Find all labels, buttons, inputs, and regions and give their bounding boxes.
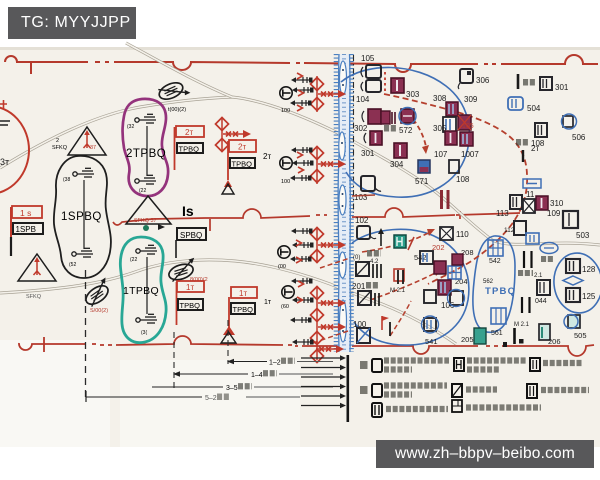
svg-text:506: 506	[572, 133, 586, 142]
svg-text:044: 044	[535, 298, 547, 305]
svg-text:(38: (38	[63, 177, 70, 183]
svg-text:1т: 1т	[264, 299, 272, 306]
svg-text:113: 113	[496, 209, 509, 218]
svg-text:109: 109	[547, 209, 561, 218]
svg-text:1 s: 1 s	[20, 208, 31, 218]
svg-text:301: 301	[555, 83, 569, 92]
svg-text:Is: Is	[182, 203, 194, 219]
svg-text:2т: 2т	[238, 143, 246, 152]
svg-text:5–2: 5–2	[205, 395, 217, 402]
svg-text:(0): (0)	[353, 255, 360, 261]
svg-text:310: 310	[550, 199, 564, 208]
svg-text:2: 2	[56, 138, 59, 144]
svg-text:SFKQ 37: SFKQ 37	[134, 218, 157, 224]
svg-text:(60: (60	[281, 304, 289, 310]
svg-text:(22: (22	[139, 188, 146, 194]
svg-text:303: 303	[406, 90, 420, 99]
svg-text:1007: 1007	[461, 150, 479, 159]
svg-text:2TPBQ: 2TPBQ	[126, 148, 166, 160]
svg-text:1SPBQ: 1SPBQ	[61, 211, 102, 223]
svg-text:100: 100	[281, 108, 290, 114]
svg-text:102: 102	[355, 216, 369, 225]
svg-text:105: 105	[462, 123, 474, 130]
svg-text:1–4: 1–4	[251, 372, 263, 379]
svg-text:103: 103	[354, 193, 368, 202]
svg-text:S/00(2): S/00(2)	[90, 308, 108, 314]
svg-text:(32: (32	[127, 124, 134, 130]
svg-text:306: 306	[476, 76, 490, 85]
svg-text:TPBQ: TPBQ	[233, 305, 254, 314]
svg-text:309: 309	[464, 95, 478, 104]
svg-text:1т: 1т	[239, 289, 247, 298]
svg-text:503: 503	[576, 231, 590, 240]
svg-text:SFKQ: SFKQ	[26, 294, 42, 300]
svg-text:108: 108	[456, 175, 470, 184]
svg-text:302: 302	[354, 124, 368, 133]
svg-text:505: 505	[574, 331, 587, 340]
svg-text:TPBQ: TPBQ	[485, 286, 516, 297]
svg-text:1т: 1т	[186, 283, 194, 292]
svg-text:308: 308	[433, 94, 447, 103]
svg-text:2т: 2т	[531, 144, 539, 153]
svg-text:128: 128	[582, 265, 596, 274]
svg-text:11: 11	[526, 190, 535, 199]
svg-text:37: 37	[90, 145, 96, 151]
svg-text:(3(: (3(	[141, 330, 147, 336]
svg-text:572: 572	[399, 126, 413, 135]
svg-text:1SPB: 1SPB	[16, 225, 36, 234]
svg-text:2т: 2т	[185, 128, 193, 137]
svg-text:105: 105	[361, 54, 375, 63]
svg-text:542: 542	[489, 258, 501, 265]
svg-text:1TPBQ: 1TPBQ	[123, 285, 159, 297]
svg-text:304: 304	[390, 160, 404, 169]
svg-text:2.1: 2.1	[534, 273, 543, 279]
svg-text:205: 205	[461, 335, 474, 344]
svg-text:100: 100	[281, 179, 290, 185]
svg-text:305: 305	[433, 124, 447, 133]
svg-text:104: 104	[356, 95, 370, 104]
svg-text:125: 125	[582, 292, 596, 301]
svg-text:541: 541	[425, 337, 438, 346]
svg-text:301: 301	[361, 149, 375, 158]
svg-text:571: 571	[415, 177, 429, 186]
svg-text:TPBQ: TPBQ	[232, 160, 253, 169]
svg-text:(00: (00	[278, 264, 286, 270]
svg-text:3т: 3т	[0, 157, 9, 167]
svg-text:TPBQ: TPBQ	[179, 145, 200, 154]
svg-text:(52: (52	[69, 262, 76, 268]
svg-text:2т: 2т	[263, 152, 271, 161]
svg-text:107: 107	[434, 150, 448, 159]
svg-text:t(00)(2): t(00)(2)	[168, 107, 186, 113]
svg-text:562: 562	[483, 279, 494, 285]
svg-text:TPBQ: TPBQ	[180, 301, 201, 310]
svg-text:110: 110	[456, 230, 469, 239]
svg-text:SPBQ: SPBQ	[180, 231, 202, 240]
svg-text:M 2.1: M 2.1	[390, 288, 406, 294]
svg-text:1–2: 1–2	[269, 360, 281, 367]
svg-text:SFKQ: SFKQ	[52, 145, 68, 151]
svg-text:3–5: 3–5	[226, 385, 238, 392]
svg-text:201: 201	[352, 282, 366, 291]
svg-text:(22: (22	[130, 257, 137, 263]
svg-text:206: 206	[548, 337, 561, 346]
svg-text:504: 504	[527, 104, 541, 113]
svg-text:561: 561	[491, 330, 503, 337]
svg-text:M 2.1: M 2.1	[514, 322, 530, 328]
